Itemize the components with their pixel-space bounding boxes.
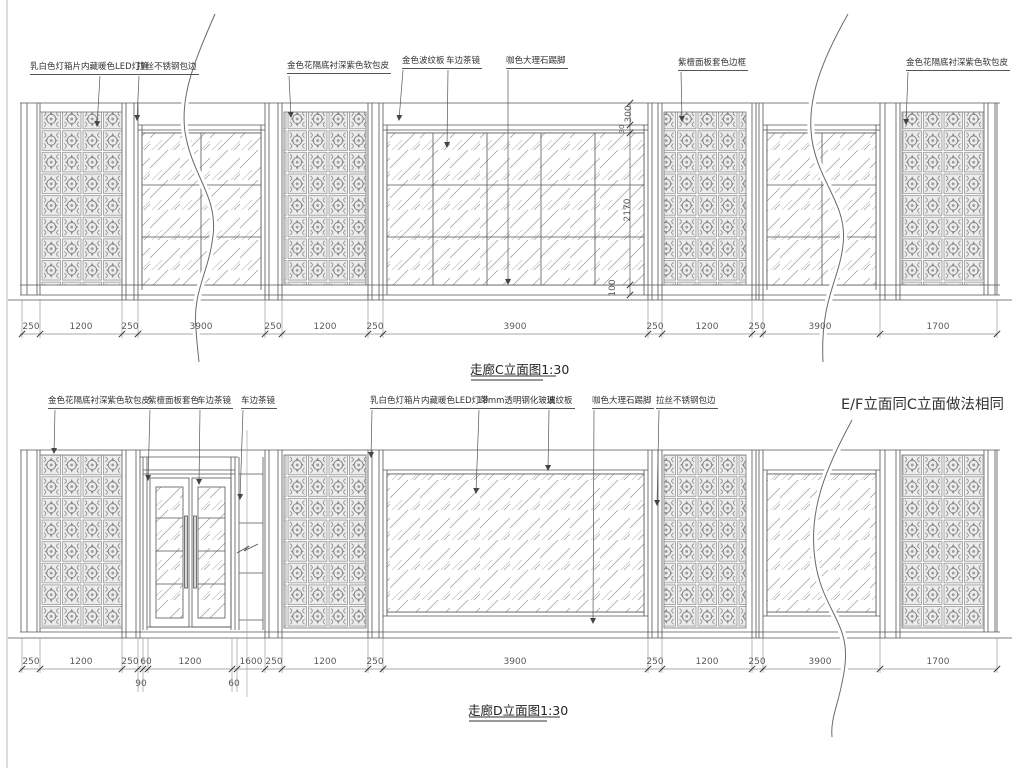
c-lattice-panel-3 [664,112,746,285]
d-callout-stainless-edge: 拉丝不锈钢包边 [656,397,718,409]
c-dim-11: 3900 [809,322,832,332]
c-dim-7: 3900 [504,322,527,332]
c-dim-5: 1200 [314,322,337,332]
d-dim-8: 250 [366,657,383,667]
elevation-d-linework [8,450,1012,638]
d-callout-marble-skirting: 咖色大理石踢脚 [592,397,654,409]
c-dim-0: 250 [22,322,39,332]
ef-elevation-note: E/F立面同C立面做法相同 [841,393,1004,414]
d-dim-9: 3900 [504,657,527,667]
c-lattice-panel-4 [902,112,984,285]
c-vdim-30: 30 [618,125,626,134]
c-dimension-chain [19,300,1000,338]
c-dim-1: 1200 [70,322,93,332]
c-mirror-center-glass [387,133,644,285]
d-dim-4: 1200 [179,657,202,667]
elevation-c-title: 走廊C立面图1:30 [470,359,569,378]
d-double-door [140,457,238,630]
d-dim-1: 1200 [70,657,93,667]
door-handle-right [194,516,197,588]
d-dim-0: 250 [22,657,39,667]
d-dim-14: 1700 [927,657,950,667]
c-mirror-right-glass [767,133,876,285]
d-callout-tea-mirror-1: 车边茶镜 [197,397,233,409]
c-callout-marble-skirting: 咖色大理石踢脚 [506,57,568,69]
d-door-sidelight [237,457,263,630]
d-lattice-panel-3 [664,455,746,628]
c-callout-tea-mirror: 车边茶镜 [446,57,482,69]
c-lattice-panel-1 [40,112,122,285]
door-handle-left [185,516,188,588]
c-dim-3: 3900 [190,322,213,332]
drawing-sheet: 乳白色灯箱片内藏暖色LED灯管 拉丝不锈钢包边 金色花隔底衬深紫色软包皮 金色波… [0,0,1024,768]
elevation-d-title: 走廊D立面图1:30 [468,700,568,719]
d-dim-11: 1200 [696,657,719,667]
c-dim-12: 1700 [927,322,950,332]
c-vdim-2170: 2170 [623,199,633,222]
d-callout-rosewood-panel: 紫檀面板套色 [148,397,201,409]
c-dim-8: 250 [646,322,663,332]
c-callout-gold-lattice-left: 金色花隔底衬深紫色软包皮 [287,62,391,74]
d-dim-5: 1600 [240,657,263,667]
d-subdim-90: 90 [135,679,146,689]
d-callout-tempered-glass: 18mm透明钢化玻璃 [477,397,557,409]
d-dim-12: 250 [748,657,765,667]
d-lattice-panel-2 [284,455,366,628]
c-dim-4: 250 [264,322,281,332]
elevation-c-linework [8,103,1012,300]
d-dim-6: 250 [265,657,282,667]
c-dim-2: 250 [121,322,138,332]
d-dim-2: 250 [121,657,138,667]
d-dim-10: 250 [646,657,663,667]
d-dim-7: 1200 [314,657,337,667]
d-lattice-panel-4 [902,455,984,628]
break-mark [237,544,258,553]
d-dim-13: 3900 [809,657,832,667]
d-lattice-panel-1 [40,455,122,628]
c-vdim-300: 300 [624,105,634,122]
c-mirror-left-glass [142,133,261,285]
linework-canvas [0,0,1024,768]
c-callout-led-lightbox: 乳白色灯箱片内藏暖色LED灯管 [30,63,151,75]
d-callout-wave-panel: 波纹板 [547,397,575,409]
d-glass-wall [383,470,648,616]
c-lattice-panel-2 [284,112,366,285]
d-subdim-60: 60 [228,679,239,689]
c-dim-6: 250 [366,322,383,332]
c-callout-gold-lattice-right: 金色花隔底衬深紫色软包皮 [906,59,1010,71]
d-callout-tea-mirror-2: 车边茶镜 [241,397,277,409]
c-vdim-100: 100 [608,279,618,296]
c-dim-10: 250 [748,322,765,332]
d-callout-led-lightbox: 乳白色灯箱片内藏暖色LED灯带 [370,397,491,409]
d-callout-gold-lattice: 金色花隔底衬深紫色软包皮 [48,397,152,409]
d-dim-3: 60 [140,657,151,667]
c-dim-9: 1200 [696,322,719,332]
c-callout-gold-wave-panel: 金色波纹板 [402,57,447,69]
c-callout-stainless-edge: 拉丝不锈钢包边 [137,63,199,75]
c-callout-rosewood-frame: 紫檀面板套色边框 [678,59,748,71]
